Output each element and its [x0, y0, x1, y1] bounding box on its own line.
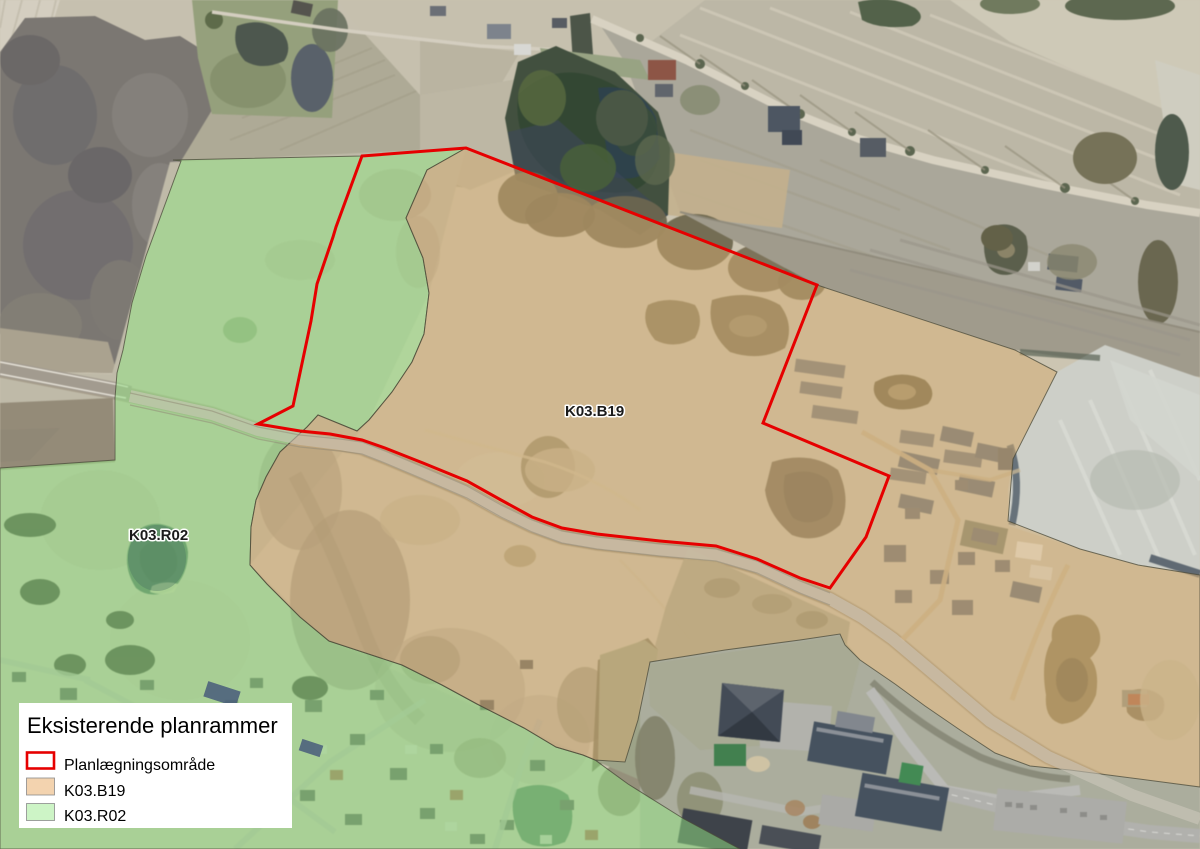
svg-text:K03.B19: K03.B19 — [565, 403, 624, 420]
svg-text:K03.R02: K03.R02 — [129, 527, 188, 544]
svg-text:K03.B19: K03.B19 — [64, 783, 125, 800]
svg-text:K03.R02: K03.R02 — [64, 808, 126, 825]
svg-text:Eksisterende planrammer: Eksisterende planrammer — [27, 713, 278, 738]
svg-text:Planlægningsområde: Planlægningsområde — [64, 756, 215, 774]
